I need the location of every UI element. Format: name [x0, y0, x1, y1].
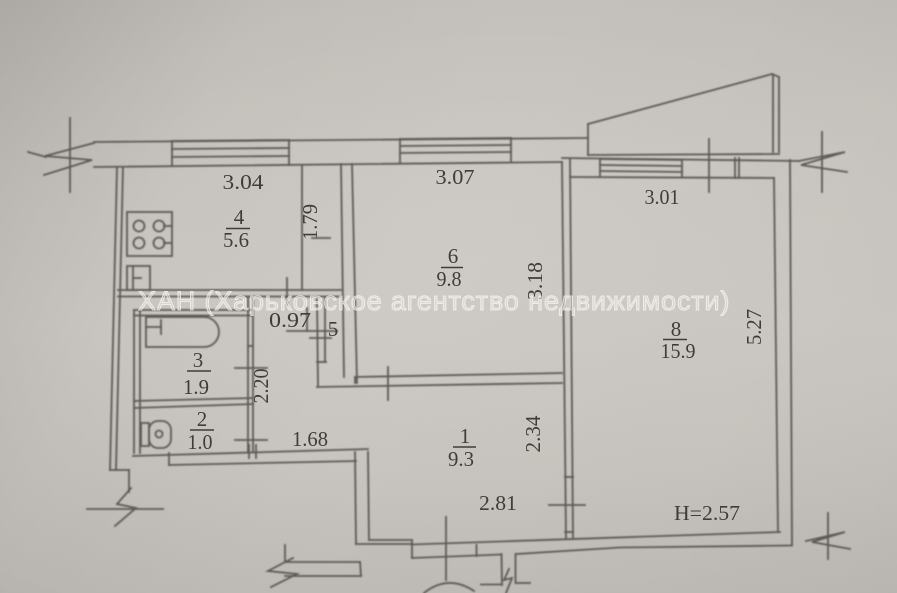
svg-text:1.0: 1.0 [188, 430, 213, 454]
svg-text:1: 1 [460, 424, 471, 448]
svg-text:Н=2.57: Н=2.57 [674, 501, 740, 525]
svg-text:5: 5 [328, 317, 339, 341]
svg-text:8: 8 [671, 317, 682, 341]
svg-text:5.6: 5.6 [223, 228, 249, 252]
svg-text:3.07: 3.07 [436, 165, 475, 189]
svg-text:1.79: 1.79 [298, 204, 322, 240]
svg-text:2.20: 2.20 [249, 369, 273, 404]
svg-text:2: 2 [197, 407, 208, 431]
svg-text:4: 4 [234, 205, 245, 229]
svg-text:1.68: 1.68 [292, 427, 328, 451]
svg-text:15.9: 15.9 [661, 339, 696, 363]
svg-text:3.04: 3.04 [223, 170, 265, 194]
svg-text:6: 6 [448, 244, 459, 268]
svg-text:2.81: 2.81 [479, 491, 517, 515]
svg-text:3: 3 [193, 348, 204, 372]
svg-text:9.3: 9.3 [448, 447, 474, 471]
svg-text:3.01: 3.01 [645, 185, 680, 209]
svg-text:2.34: 2.34 [521, 415, 545, 453]
svg-text:1.9: 1.9 [183, 375, 209, 399]
